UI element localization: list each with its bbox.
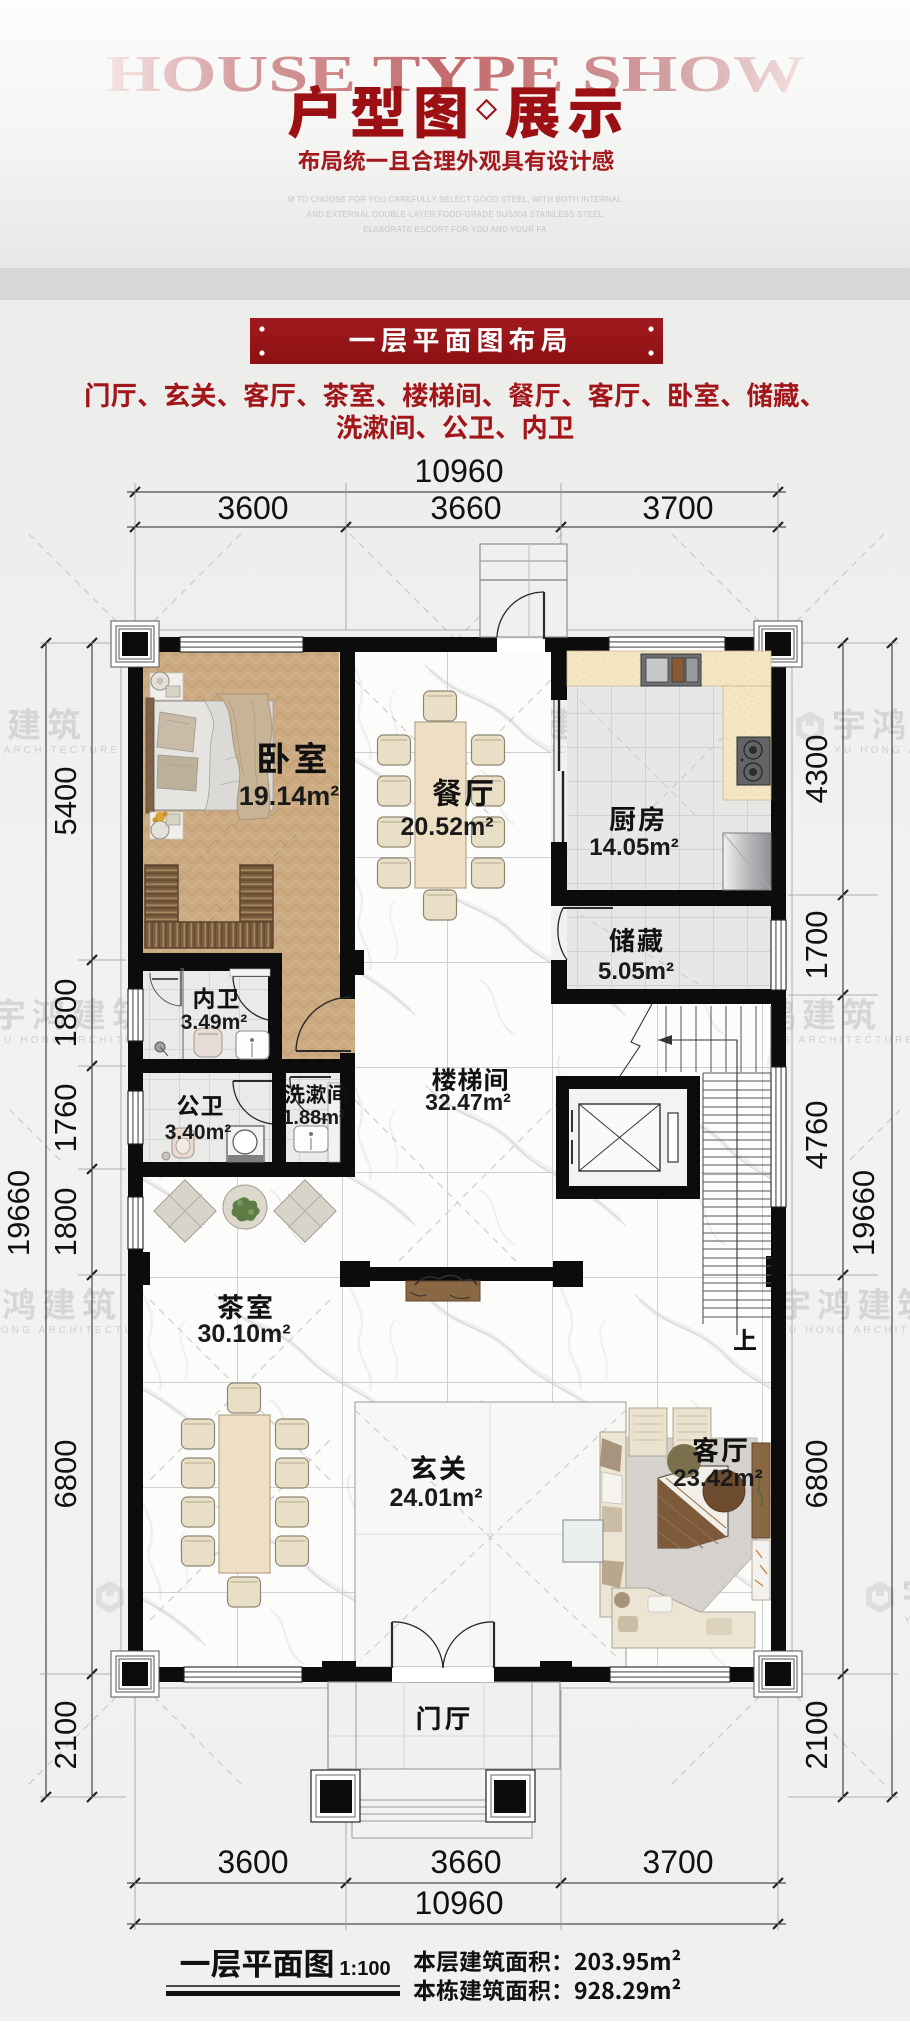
- svg-text:1760: 1760: [48, 1084, 83, 1153]
- svg-text:10960: 10960: [415, 453, 504, 489]
- svg-text:4300: 4300: [799, 735, 834, 804]
- svg-text:1800: 1800: [48, 979, 83, 1048]
- svg-text:2100: 2100: [799, 1701, 834, 1770]
- svg-text:1.88m²: 1.88m²: [282, 1107, 346, 1129]
- svg-text:32.47m²: 32.47m²: [425, 1089, 511, 1115]
- svg-text:3700: 3700: [642, 1844, 713, 1880]
- svg-text:1700: 1700: [799, 911, 834, 980]
- svg-text:14.05m²: 14.05m²: [589, 834, 678, 861]
- svg-text:AND EXTERNAL DOUBLE-LAYER FOOD: AND EXTERNAL DOUBLE-LAYER FOOD-GRADE SUS…: [307, 210, 604, 219]
- svg-text:3.40m²: 3.40m²: [165, 1121, 232, 1144]
- svg-text:30.10m²: 30.10m²: [197, 1320, 290, 1348]
- svg-text:3700: 3700: [642, 490, 713, 526]
- svg-text:4760: 4760: [799, 1101, 834, 1170]
- svg-text:3600: 3600: [217, 1844, 288, 1880]
- svg-text:5.05m²: 5.05m²: [598, 958, 674, 985]
- svg-text:M TO CHOOSE FOR YOU CAREFULLY: M TO CHOOSE FOR YOU CAREFULLY SELECT GOO…: [288, 195, 623, 204]
- svg-text:19660: 19660: [1, 1170, 36, 1256]
- svg-text:19.14m²: 19.14m²: [239, 781, 340, 811]
- svg-text:ELABORATE ESCORT FOR YOU AND Y: ELABORATE ESCORT FOR YOU AND YOUR FA: [363, 225, 547, 234]
- svg-text:24.01m²: 24.01m²: [389, 1484, 482, 1512]
- svg-text:1800: 1800: [48, 1188, 83, 1257]
- svg-text:3.49m²: 3.49m²: [181, 1011, 248, 1034]
- svg-text:6800: 6800: [48, 1440, 83, 1509]
- svg-text:6800: 6800: [799, 1440, 834, 1509]
- svg-text:10960: 10960: [415, 1885, 504, 1921]
- svg-text:19660: 19660: [846, 1170, 881, 1256]
- svg-text:3660: 3660: [430, 1844, 501, 1880]
- svg-text:2100: 2100: [48, 1701, 83, 1770]
- svg-text:3660: 3660: [430, 490, 501, 526]
- svg-text:23.42m²: 23.42m²: [673, 1465, 762, 1492]
- svg-text:1:100: 1:100: [339, 1958, 390, 1980]
- svg-text:20.52m²: 20.52m²: [400, 813, 493, 841]
- svg-text:HOUSE TYPE SHOW: HOUSE TYPE SHOW: [105, 46, 805, 103]
- svg-text:3600: 3600: [217, 490, 288, 526]
- svg-text:5400: 5400: [48, 767, 83, 836]
